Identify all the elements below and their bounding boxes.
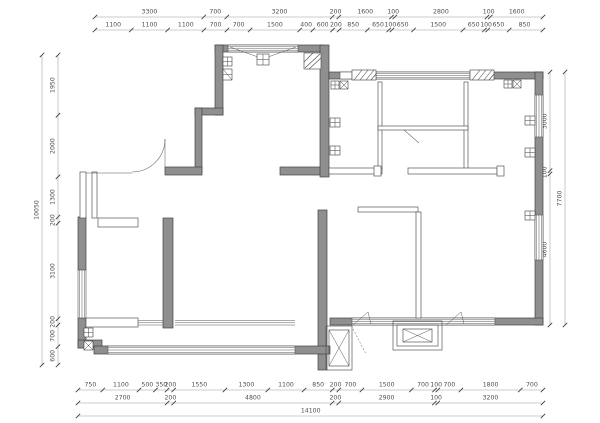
entry-door-arc <box>132 139 165 172</box>
shafts <box>326 321 442 370</box>
dim-label: 200 <box>330 22 342 29</box>
dim-label: 1600 <box>357 9 373 16</box>
dim-label: 1950 <box>50 77 57 93</box>
dim-label: 200 <box>50 316 57 328</box>
dim-label: 1300 <box>50 189 57 205</box>
entry-door-dashed <box>353 329 366 354</box>
dim-label: 650 <box>372 22 384 29</box>
dim-label: 1300 <box>239 382 255 389</box>
partition <box>86 318 138 327</box>
dim-label: 2700 <box>115 395 131 402</box>
dim-label: 850 <box>519 22 531 29</box>
partition <box>408 168 497 174</box>
window <box>340 72 352 79</box>
dim-chain-left: 1950 2000 1300 200 3100 200 700 600 1005… <box>34 53 61 367</box>
dim-label: 4800 <box>245 395 261 402</box>
dim-label: 3300 <box>142 9 158 16</box>
wall-segment <box>78 217 86 270</box>
wall-segment <box>165 167 202 175</box>
dim-label: 1800 <box>483 382 499 389</box>
dim-label: 600 <box>50 350 57 362</box>
dim-label: 1100 <box>142 22 158 29</box>
dim-label: 10050 <box>34 200 41 220</box>
interior-wall <box>163 218 173 328</box>
dim-label: 2900 <box>379 395 395 402</box>
door-jamb <box>374 166 381 176</box>
dim-label: 2800 <box>433 9 449 16</box>
dim-label: 3200 <box>483 395 499 402</box>
dim-label: 1100 <box>278 382 294 389</box>
dim-label: 1100 <box>113 382 129 389</box>
dim-label: 200 <box>50 214 57 226</box>
dim-label: 200 <box>329 395 341 402</box>
dim-label: 700 <box>443 382 455 389</box>
dim-label: 100 <box>483 9 495 16</box>
interior-partitions <box>80 82 504 327</box>
dim-label: 850 <box>347 22 359 29</box>
wall-segment <box>215 45 223 115</box>
dim-label: 1500 <box>379 382 395 389</box>
dim-label: 700 <box>209 9 221 16</box>
wall-segment <box>320 45 329 177</box>
dim-label: 1500 <box>267 22 283 29</box>
dim-label: 100 <box>430 395 442 402</box>
dim-label: 700 <box>210 22 222 29</box>
elevator-cross <box>329 330 349 366</box>
wardrobe-outline <box>358 207 418 212</box>
dim-label: 200 <box>164 382 176 389</box>
dim-label: 700 <box>344 382 356 389</box>
door-jamb <box>497 166 504 176</box>
dim-label: 100 <box>384 22 396 29</box>
dim-label: 1600 <box>509 9 525 16</box>
dim-label: 650 <box>468 22 480 29</box>
partition <box>80 172 86 218</box>
dim-chain-top: 3300 700 3200 200 1600 100 2800 100 1600… <box>93 9 545 33</box>
dim-label: 7700 <box>557 191 564 207</box>
dim-label: 700 <box>526 382 538 389</box>
bath-door-swing <box>404 130 419 143</box>
dim-label: 650 <box>492 22 504 29</box>
dim-label: 200 <box>164 395 176 402</box>
dim-label: 700 <box>50 330 57 342</box>
dim-label: 200 <box>330 382 342 389</box>
dim-label: 700 <box>233 22 245 29</box>
dim-chain-right: 3000 100 4600 7700 <box>542 70 568 327</box>
floor-plan-canvas: 3300 700 3200 200 1600 100 2800 100 1600… <box>0 0 600 423</box>
ac-cross <box>403 329 432 342</box>
bath-divider <box>378 126 468 130</box>
dim-label: 3100 <box>50 263 57 279</box>
doors <box>132 130 464 325</box>
dim-label: 100 <box>480 22 492 29</box>
windows <box>78 45 543 354</box>
dim-label: 400 <box>300 22 312 29</box>
dim-label: 1100 <box>105 22 121 29</box>
dim-label: 14100 <box>301 408 321 415</box>
partition <box>92 172 97 218</box>
dim-label: 2000 <box>50 138 57 154</box>
dim-label: 1100 <box>178 22 194 29</box>
floor-plan-drawing: 3300 700 3200 200 1600 100 2800 100 1600… <box>0 0 600 423</box>
dim-label: 850 <box>312 382 324 389</box>
dim-label: 3200 <box>272 9 288 16</box>
dim-label: 100 <box>387 9 399 16</box>
dim-label: 750 <box>84 382 96 389</box>
dim-label: 200 <box>330 9 342 16</box>
dim-chain-bottom: 750 1100 500 350 200 1550 1300 1100 850 … <box>76 382 545 419</box>
dim-label: 600 <box>317 22 329 29</box>
dim-label: 1500 <box>430 22 446 29</box>
dim-label: 500 <box>141 382 153 389</box>
balcony-window-glazing <box>138 321 295 325</box>
dim-label: 100 <box>430 382 442 389</box>
dim-label: 1550 <box>191 382 207 389</box>
partition <box>98 218 138 227</box>
dim-label: 700 <box>417 382 429 389</box>
dim-label: 650 <box>397 22 409 29</box>
partition <box>416 212 421 318</box>
wall-segment <box>195 108 202 172</box>
